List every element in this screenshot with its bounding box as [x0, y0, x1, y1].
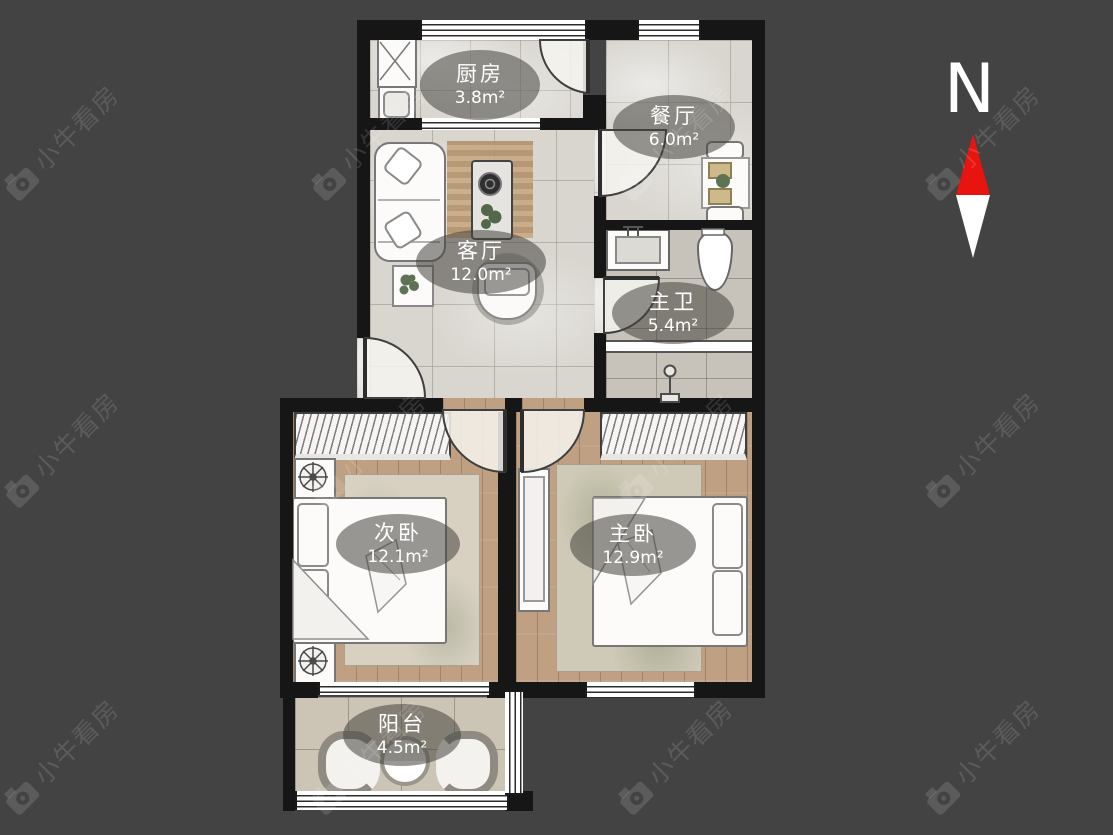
- room-name: 次卧: [374, 520, 422, 546]
- room-name: 厨房: [456, 61, 504, 87]
- placemat: [708, 188, 732, 205]
- pillow: [712, 570, 743, 636]
- watermark: 小牛看房: [0, 633, 184, 821]
- room-label-balcony: 阳台 4.5m²: [343, 704, 461, 766]
- camera-icon: [304, 159, 351, 206]
- wall: [357, 118, 420, 130]
- north-arrow-icon: [952, 132, 994, 260]
- wall: [280, 682, 318, 698]
- wall: [584, 398, 765, 412]
- floor-plan-screen: 厨房 3.8m² 餐厅 6.0m² 客厅 12.0m² 主卫 5.4m² 次卧 …: [0, 0, 1113, 835]
- watermark-text: 小牛看房: [946, 383, 1048, 485]
- camera-icon: [0, 773, 44, 820]
- room-name: 主卫: [649, 289, 697, 315]
- wall: [692, 682, 765, 698]
- watermark: 小牛看房: [917, 633, 1105, 821]
- bedroom-door-threshold: [443, 398, 505, 412]
- second-bedroom-wardrobe: [294, 412, 451, 460]
- wall: [280, 398, 443, 412]
- compass-north-label: N: [944, 56, 995, 124]
- bath-door-threshold: [594, 278, 606, 333]
- bedside-table: [294, 458, 336, 500]
- wall: [752, 20, 765, 697]
- wall: [538, 118, 606, 130]
- watermark-text: 小牛看房: [946, 690, 1048, 792]
- dresser-inner: [523, 476, 545, 602]
- room-label-living: 客厅 12.0m²: [416, 230, 546, 294]
- kitchen-sink-basin: [383, 91, 410, 118]
- wall: [283, 697, 295, 791]
- wall: [606, 220, 752, 230]
- room-name: 客厅: [457, 238, 505, 264]
- camera-icon: [0, 159, 44, 206]
- wall: [357, 20, 420, 40]
- master-bedroom-wardrobe: [600, 412, 747, 460]
- bedside-table: [294, 642, 336, 684]
- wall: [487, 682, 585, 698]
- watermark-text: 小牛看房: [25, 690, 127, 792]
- window: [585, 682, 696, 698]
- camera-icon: [611, 773, 658, 820]
- tv-cabinet: [471, 160, 513, 240]
- wall: [357, 40, 370, 338]
- watermark: 小牛看房: [917, 326, 1105, 514]
- bedroom-door-threshold: [522, 398, 584, 412]
- room-label-second-bedroom: 次卧 12.1m²: [336, 514, 460, 574]
- north-arrow-white-half: [956, 195, 990, 258]
- fridge: [377, 38, 417, 88]
- wall: [280, 412, 293, 698]
- camera-icon: [918, 773, 965, 820]
- pillow: [712, 503, 743, 569]
- watermark: 小牛看房: [0, 326, 184, 514]
- room-name: 主卧: [609, 521, 657, 547]
- wall: [505, 398, 522, 412]
- window: [420, 20, 587, 40]
- wall: [594, 196, 606, 278]
- wall: [583, 20, 637, 40]
- balcony-window: [295, 791, 509, 810]
- camera-icon: [918, 466, 965, 513]
- room-label-kitchen: 厨房 3.8m²: [420, 50, 540, 120]
- north-arrow-red-half: [956, 134, 990, 195]
- room-area: 3.8m²: [455, 88, 505, 109]
- window: [637, 20, 701, 40]
- watermark: 小牛看房: [0, 19, 184, 207]
- watermark-text: 小牛看房: [639, 690, 741, 792]
- pillow: [297, 503, 329, 567]
- window: [318, 682, 491, 695]
- camera-icon: [0, 466, 44, 513]
- pillow: [297, 569, 329, 633]
- balcony-window: [505, 690, 523, 795]
- room-area: 12.0m²: [450, 265, 511, 286]
- room-area: 12.9m²: [602, 548, 663, 569]
- room-name: 餐厅: [650, 103, 698, 129]
- bathroom-sink-basin: [615, 236, 661, 264]
- room-label-master-bath: 主卫 5.4m²: [612, 282, 734, 344]
- placemat: [708, 162, 732, 179]
- wall: [283, 791, 295, 811]
- room-area: 5.4m²: [648, 316, 698, 337]
- room-area: 12.1m²: [367, 547, 428, 568]
- room-label-dining: 餐厅 6.0m²: [613, 95, 735, 159]
- watermark-text: 小牛看房: [25, 76, 127, 178]
- entrance-threshold: [357, 338, 370, 398]
- room-area: 4.5m²: [377, 738, 427, 759]
- room-name: 阳台: [378, 711, 426, 737]
- room-area: 6.0m²: [649, 130, 699, 151]
- watermark-text: 小牛看房: [25, 383, 127, 485]
- room-label-master-bedroom: 主卧 12.9m²: [570, 514, 696, 576]
- wall: [498, 412, 516, 684]
- dining-door-threshold: [594, 130, 606, 196]
